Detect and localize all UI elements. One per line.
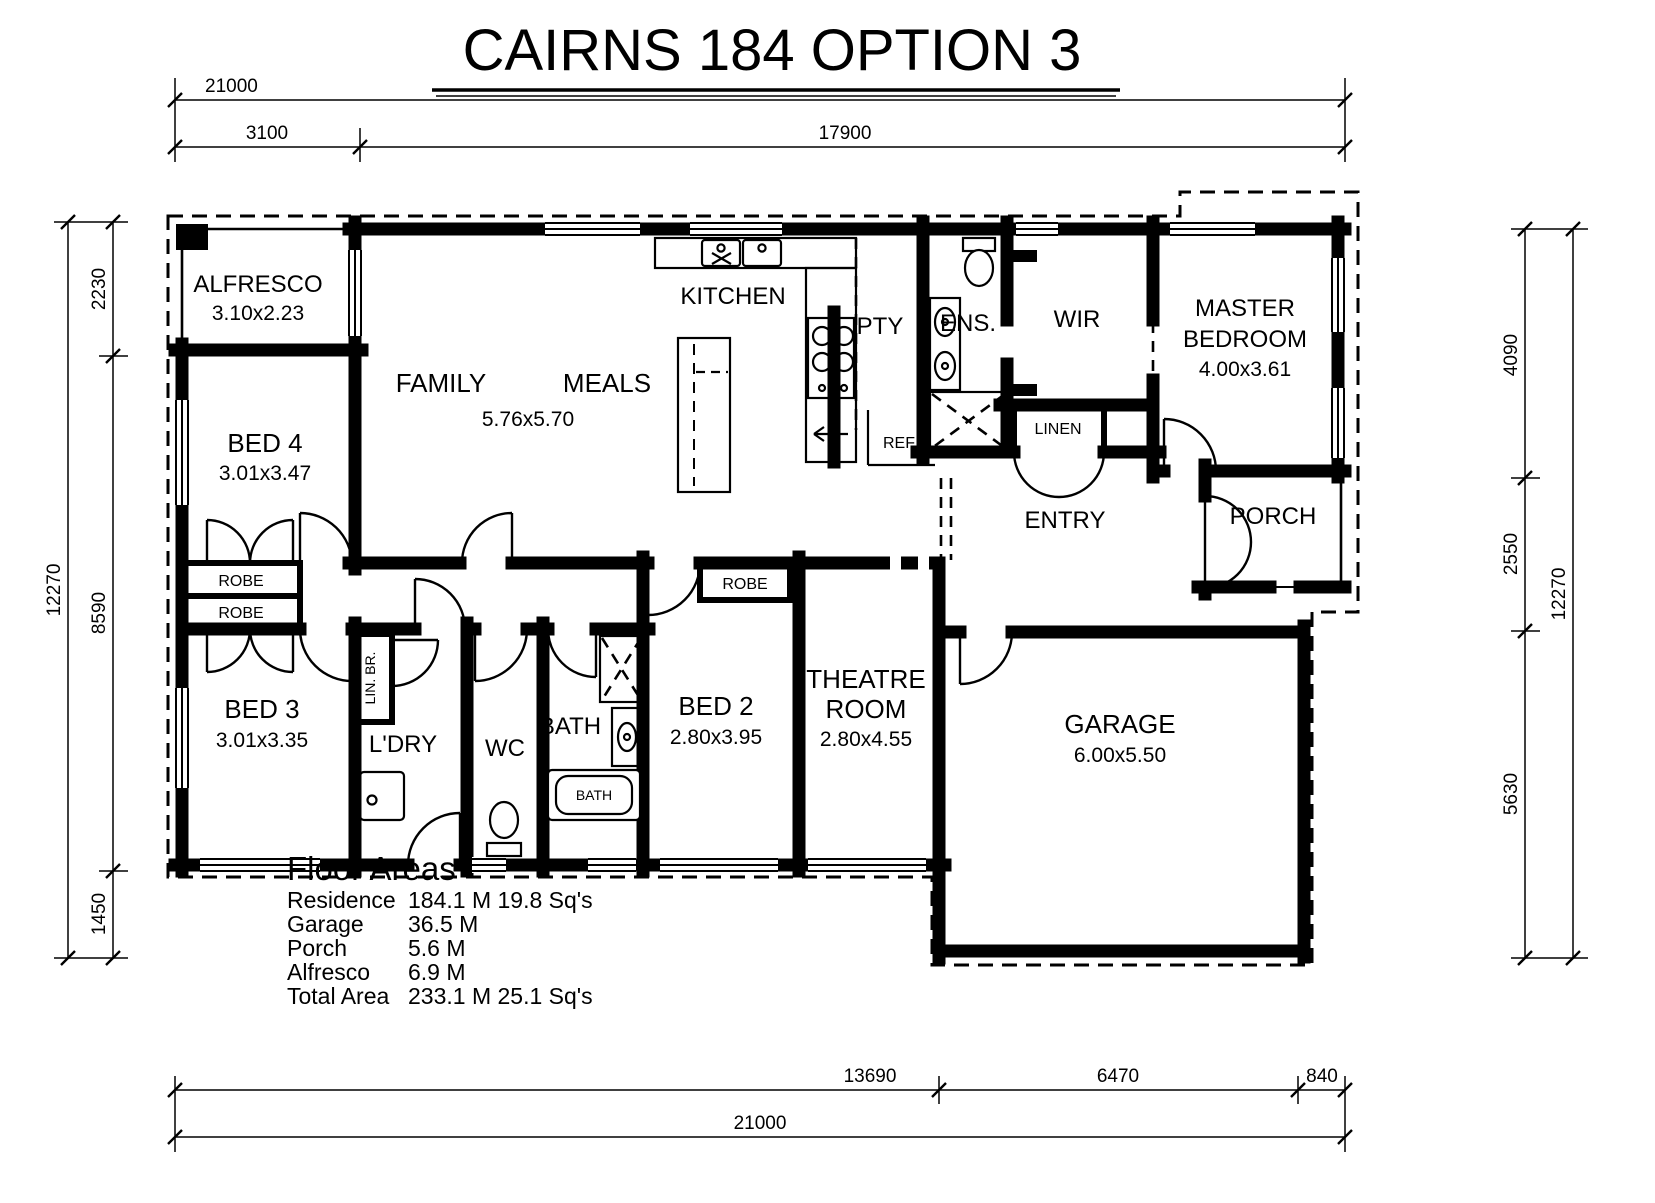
label-master-1: MASTER [1195,295,1295,322]
dim-bot-right: 840 [1306,1066,1338,1087]
fa-row-value: 233.1 M 25.1 Sq's [408,983,593,1009]
window-bed4 [174,400,190,505]
label-wc: WC [485,735,525,762]
door-garage-internal [960,632,1012,684]
ens-toilet-icon [965,250,993,286]
label-porch: PORCH [1230,503,1317,530]
label-theatre-1: THEATRE [806,664,925,694]
fa-row-label: Garage [287,911,364,937]
size-bed2: 2.80x3.95 [670,726,762,749]
size-bed4: 3.01x3.47 [219,462,311,485]
label-theatre-2: ROOM [826,694,907,724]
window-master-top [1170,221,1255,237]
label-family: FAMILY [396,368,487,398]
window-bath-bottom [588,857,636,873]
label-ref: REF [883,435,915,452]
label-robe-3: ROBE [722,576,767,593]
fa-row-value: 5.6 M [408,935,466,961]
label-kitchen: KITCHEN [680,283,785,310]
door-ldry [415,579,465,629]
floor-areas-heading: Floor Areas [287,850,456,887]
window-family [545,221,640,237]
dim-bot-left: 13690 [844,1066,897,1087]
label-bed3: BED 3 [224,694,299,724]
dim-left-total: 12270 [44,564,65,617]
label-bathtub: BATH [576,787,612,803]
page-title: CAIRNS 184 OPTION 3 [463,18,1082,83]
window-wc-bottom [472,857,506,873]
title-block: CAIRNS 184 OPTION 3 [432,18,1120,96]
label-lin-br: LIN. BR. [362,652,378,705]
size-garage: 6.00x5.50 [1074,744,1166,767]
fa-row-value: 6.9 M [408,959,466,985]
ens-basin-2 [935,352,955,380]
label-bath: BATH [539,713,601,740]
door-bath [548,629,596,677]
fa-row-label: Residence [287,887,396,913]
label-master-2: BEDROOM [1183,326,1307,353]
dim-left-top: 2230 [89,268,110,310]
wc-toilet-icon [490,802,518,838]
size-theatre: 2.80x4.55 [820,728,912,751]
size-bed3: 3.01x3.35 [216,729,308,752]
door-linen-broom [392,640,438,686]
island-bench [678,338,730,492]
bath-basin [618,723,636,751]
window-kitchen [690,221,782,237]
wc-toilet-cistern [487,843,521,856]
door-bed2 [648,563,700,615]
fa-row-value: 36.5 M [408,911,478,937]
dim-right-bot: 5630 [1501,773,1522,815]
label-pty: PTY [857,313,904,340]
fa-row-label: Porch [287,935,347,961]
dim-top-right: 17900 [819,123,872,144]
door-bed3 [300,629,352,681]
label-bed2: BED 2 [678,691,753,721]
label-bed4: BED 4 [227,428,302,458]
window-theatre-bottom [808,857,926,873]
label-garage: GARAGE [1064,709,1175,739]
alfresco-post [176,224,208,250]
label-entry: ENTRY [1025,507,1106,534]
window-bed2-bottom [660,857,778,873]
dim-top-total: 21000 [205,76,258,97]
floor-plan-page: CAIRNS 184 OPTION 3 [0,0,1655,1203]
floor-plan-drawing: CAIRNS 184 OPTION 3 [0,0,1655,1203]
window-ens [1016,221,1058,237]
label-robe-1: ROBE [218,573,263,590]
size-master: 4.00x3.61 [1199,358,1291,381]
label-linen: LINEN [1034,421,1081,438]
label-wir: WIR [1054,306,1101,333]
door-linen-bifold [1014,452,1104,497]
window-bed3 [174,688,190,788]
dim-right-mid: 2550 [1501,533,1522,575]
fa-row-label: Total Area [287,983,389,1009]
door-robe-bed4 [207,520,293,563]
dim-bot-total: 21000 [734,1113,787,1134]
fa-row-value: 184.1 M 19.8 Sq's [408,887,593,913]
fa-row-label: Alfresco [287,959,370,985]
window-master-right-1 [1330,258,1346,332]
door-family-hall [462,513,512,563]
label-robe-2: ROBE [218,605,263,622]
dim-top-left: 3100 [246,123,288,144]
size-alfresco: 3.10x2.23 [212,302,304,325]
laundry-tub [360,772,404,820]
dim-right-top: 4090 [1501,334,1522,376]
window-master-right-2 [1330,388,1346,458]
sliding-door-alfresco [347,250,363,336]
door-wc [475,629,527,681]
size-family-meals: 5.76x5.70 [482,408,574,431]
door-bed4 [300,513,352,563]
label-ldry: L'DRY [369,731,437,758]
dim-bot-mid: 6470 [1097,1066,1139,1087]
label-alfresco: ALFRESCO [193,271,322,298]
dim-left-mid: 8590 [89,592,110,634]
dim-right-total: 12270 [1549,568,1570,621]
dim-left-bot: 1450 [89,893,110,935]
label-meals: MEALS [563,368,651,398]
label-ens: ENS. [940,310,996,337]
